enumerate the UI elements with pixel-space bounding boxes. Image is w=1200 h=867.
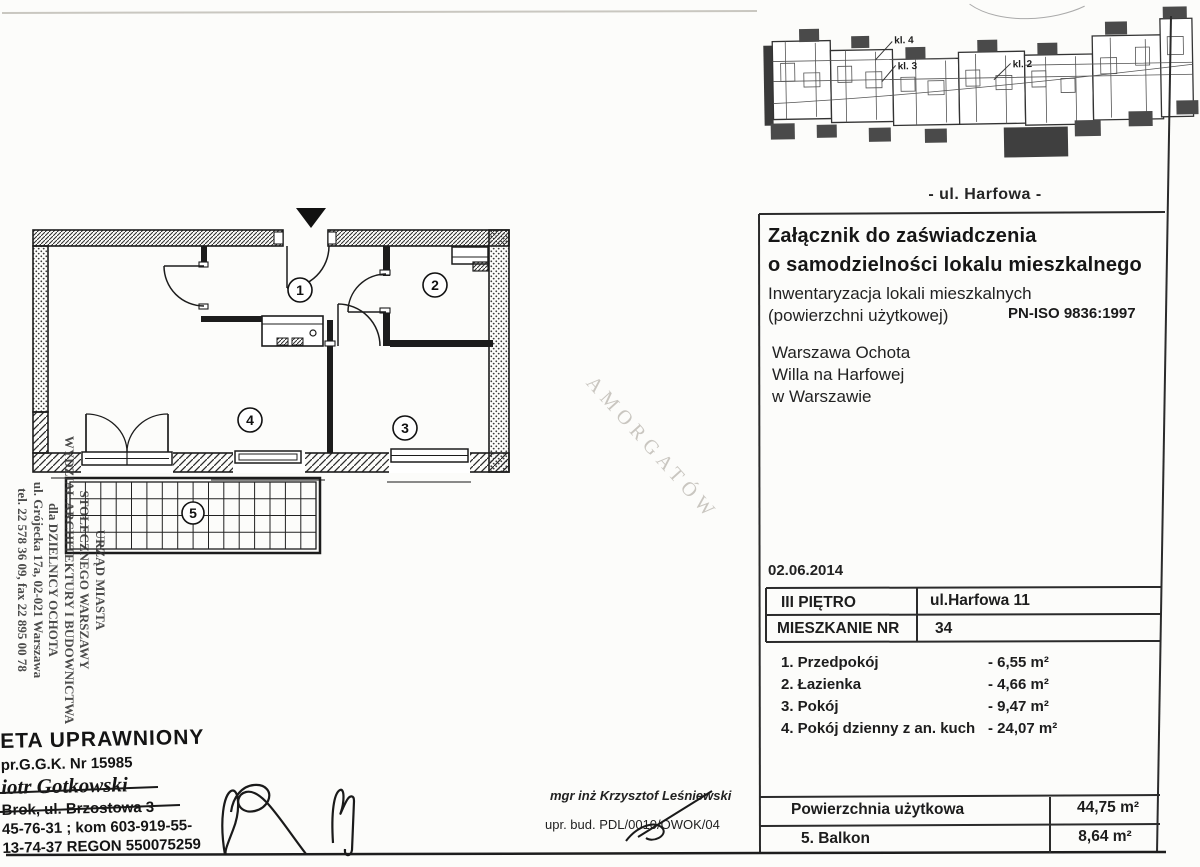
location-line-3: w Warszawie [772,386,910,408]
room-list-item: 4. Pokój dzienny z an. kuch [781,718,975,740]
room-area-value: - 24,07 m² [988,718,1057,740]
summary-usable-area-value: 44,75 m² [1058,799,1158,817]
room-area-value: - 4,66 m² [988,674,1057,696]
room-area-value: - 9,47 m² [988,696,1057,718]
location-block: Warszawa Ochota Willa na Harfowej w Wars… [772,342,910,408]
document-date: 02.06.2014 [768,562,843,579]
room-area-value: - 6,55 m² [988,652,1057,674]
room-list-item: 3. Pokój [781,696,975,718]
surveyor-stamp: ETA UPRAWNIONY pr.G.G.K. Nr 15985 iotr G… [0,726,207,857]
room-list-item: 2. Łazienka [781,674,975,696]
top-faint-rule [2,11,757,13]
surveyor-address: Brok, ul. Brzostowa 3 [2,798,206,819]
document-title: Załącznik do zaświadczenia o samodzielno… [768,222,1142,280]
surveyor-name-script: iotr Gotkowski [1,771,206,800]
engineer-name: mgr inż Krzysztof Leśniewski [550,788,731,803]
title-line-2: o samodzielności lokalu mieszkalnego [768,251,1142,280]
right-border [1157,16,1171,853]
location-line-2: Willa na Harfowej [772,364,910,386]
subtitle-line-1: Inwentaryzacja lokali mieszkalnych [768,283,1032,305]
norm-code: PN-ISO 9836:1997 [1008,305,1136,322]
subtitle-line-2: (powierzchni użytkowej) [768,305,1032,327]
scanned-certificate-page: AMORGATÓW [0,0,1200,867]
surveyor-phone: 45-76-31 ; kom 603-919-55- [2,817,206,838]
title-line-1: Załącznik do zaświadczenia [768,222,1142,251]
info-row-floor-value: ul.Harfowa 11 [930,592,1030,610]
summary-usable-area-label: Powierzchnia użytkowa [791,801,964,819]
info-row-floor-label: III PIĘTRO [781,594,856,612]
panel-top-rule [759,212,1165,214]
room-list: 1. Przedpokój 2. Łazienka 3. Pokój 4. Po… [781,652,975,740]
panel-divider [759,214,760,854]
info-row-apartment-label: MIESZKANIE NR [777,620,899,638]
street-caption: - ul. Harfowa - [880,186,1090,204]
room-area-list: - 6,55 m² - 4,66 m² - 9,47 m² - 24,07 m² [988,652,1057,740]
engineer-license: upr. bud. PDL/0010/OWOK/04 [545,817,720,832]
surveyor-stamp-title: ETA UPRAWNIONY [0,726,205,754]
summary-balcony-label: 5. Balkon [801,830,870,848]
room-list-item: 1. Przedpokój [781,652,975,674]
summary-balcony-value: 8,64 m² [1055,828,1155,846]
location-line-1: Warszawa Ochota [772,342,910,364]
info-row-apartment-value: 34 [935,620,952,638]
document-subtitle: Inwentaryzacja lokali mieszkalnych (powi… [768,283,1032,327]
